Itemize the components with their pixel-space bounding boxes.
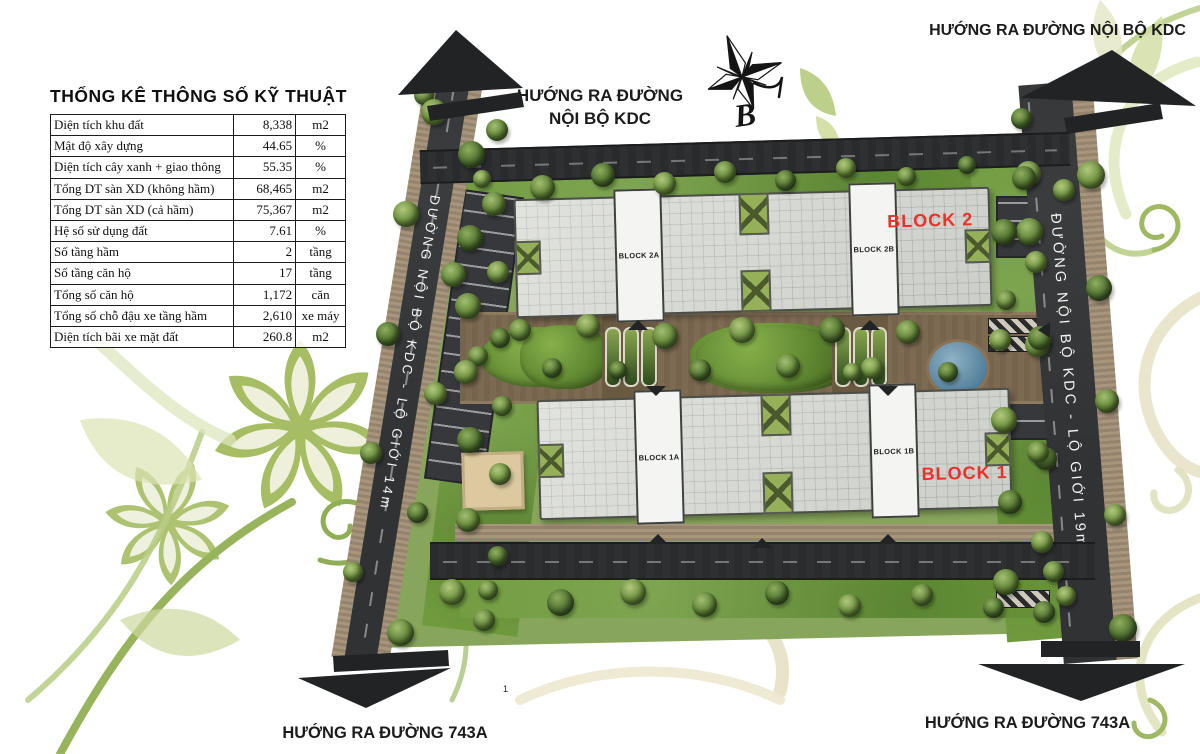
row-unit: %	[296, 136, 346, 157]
row-unit: tầng	[296, 263, 346, 284]
row-unit: %	[296, 220, 346, 241]
stats-panel: THỐNG KÊ THÔNG SỐ KỸ THUẬT Diện tích khu…	[50, 86, 346, 348]
tree	[473, 609, 495, 631]
tree	[692, 592, 717, 617]
block-2-label: BLOCK 2	[874, 209, 987, 233]
table-row: Diện tích cây xanh + giao thông55.35%	[51, 157, 346, 178]
row-value: 68,465	[234, 178, 296, 199]
tree	[996, 290, 1016, 310]
tree	[689, 359, 711, 381]
tree	[1104, 504, 1126, 526]
row-label: Tổng số chỗ đậu xe tầng hầm	[51, 305, 234, 326]
row-unit: tầng	[296, 242, 346, 263]
row-value: 1,172	[234, 284, 296, 305]
row-unit: căn	[296, 284, 346, 305]
table-row: Tổng số chỗ đậu xe tầng hầm2,610xe máy	[51, 305, 346, 326]
tree	[653, 172, 676, 195]
tree	[938, 362, 958, 382]
row-value: 7.61	[234, 220, 296, 241]
page-marker: 1	[503, 684, 508, 694]
row-unit: m2	[296, 178, 346, 199]
row-label: Số tầng căn hộ	[51, 263, 234, 284]
tree	[861, 357, 883, 379]
row-unit: xe máy	[296, 305, 346, 326]
tree	[490, 328, 510, 348]
building-notch	[538, 444, 565, 479]
tree	[1077, 161, 1105, 189]
direction-label-top-center: HƯỚNG RA ĐƯỜNG NỘI BỘ KDC	[500, 84, 700, 130]
stats-table: Diện tích khu đất8,338m2 Mật độ xây dựng…	[50, 114, 346, 348]
building-notch	[760, 394, 791, 437]
core-label: BLOCK 1B	[873, 446, 914, 456]
row-label: Tổng số căn hộ	[51, 284, 234, 305]
building-block-1: BLOCK 1A BLOCK 1B BLOCK 1	[537, 388, 1013, 520]
tree	[441, 262, 466, 287]
table-row: Số tầng hầm2tầng	[51, 242, 346, 263]
road-label-right: ĐƯỜNG NỘI BỘ KDC - LỘ GIỚI 19m	[1047, 213, 1089, 550]
tree	[1025, 251, 1047, 273]
tree	[1033, 601, 1055, 623]
tree	[991, 219, 1017, 245]
building-notch	[515, 241, 542, 276]
lawn-blob	[520, 325, 610, 389]
row-value: 17	[234, 263, 296, 284]
sidewalk-bottom	[455, 524, 1095, 541]
tree	[473, 170, 491, 188]
tree	[1012, 166, 1036, 190]
tree	[489, 463, 511, 485]
core-block-2a: BLOCK 2A	[613, 188, 664, 322]
tree	[387, 619, 414, 646]
tree	[1056, 586, 1076, 606]
tree	[998, 490, 1022, 514]
tree	[1028, 326, 1052, 350]
tree	[458, 141, 485, 168]
row-value: 44.65	[234, 136, 296, 157]
core-label: BLOCK 2B	[853, 244, 894, 254]
row-unit: %	[296, 157, 346, 178]
tree	[1086, 275, 1112, 301]
tree	[993, 569, 1019, 595]
tree	[1043, 561, 1064, 582]
arch-planter	[623, 327, 639, 387]
tree	[376, 322, 400, 346]
table-row: Tổng DT sàn XD (không hầm)68,465m2	[51, 178, 346, 199]
site-plan-page: ĐƯỜNG NỘI BỘ KDC - LỘ GIỚI 14m ĐƯỜNG NỘI…	[0, 0, 1200, 754]
tree	[457, 427, 483, 453]
tree	[542, 358, 562, 378]
building-notch	[964, 229, 991, 264]
lane-line	[443, 561, 1081, 563]
row-value: 260.8	[234, 326, 296, 347]
tree	[482, 192, 506, 216]
table-row: Diện tích khu đất8,338m2	[51, 115, 346, 136]
row-label: Mật độ xây dựng	[51, 136, 234, 157]
tree	[896, 320, 920, 344]
tree	[775, 170, 796, 191]
tree	[983, 597, 1004, 618]
tree	[620, 579, 646, 605]
row-label: Số tầng hầm	[51, 242, 234, 263]
building-notch	[740, 270, 771, 313]
tree	[838, 594, 861, 617]
trellis-band	[602, 315, 658, 401]
row-label: Tổng DT sàn XD (không hầm)	[51, 178, 234, 199]
table-row: Tổng số căn hộ1,172căn	[51, 284, 346, 305]
tree	[819, 317, 845, 343]
block-1-label: BLOCK 1	[908, 462, 1021, 486]
row-label: Diện tích cây xanh + giao thông	[51, 157, 234, 178]
tree	[609, 361, 627, 379]
table-row: Số tầng căn hộ17tầng	[51, 263, 346, 284]
row-value: 75,367	[234, 199, 296, 220]
tree	[492, 396, 512, 416]
core-block-1b: BLOCK 1B	[868, 383, 919, 518]
row-value: 2	[234, 242, 296, 263]
tree	[1109, 614, 1137, 642]
row-unit: m2	[296, 115, 346, 136]
tree	[456, 508, 480, 532]
building-block-2: BLOCK 2A BLOCK 2B BLOCK 2	[514, 187, 993, 318]
tree	[424, 382, 447, 405]
tree	[911, 584, 933, 606]
direction-label-bottom-left: HƯỚNG RA ĐƯỜNG 743A	[265, 724, 505, 743]
tree	[360, 442, 382, 464]
tree	[455, 293, 481, 319]
tree	[421, 99, 447, 125]
tree	[776, 354, 800, 378]
table-row: Diện tích bãi xe mặt đất260.8m2	[51, 326, 346, 347]
direction-label-bottom-right: HƯỚNG RA ĐƯỜNG 743A	[905, 714, 1150, 733]
row-unit: m2	[296, 199, 346, 220]
row-label: Hệ số sử dụng đất	[51, 220, 234, 241]
tree	[478, 580, 498, 600]
tree	[991, 407, 1017, 433]
tree	[1053, 179, 1075, 201]
tree	[1027, 441, 1049, 463]
tree	[488, 546, 508, 566]
row-value: 8,338	[234, 115, 296, 136]
building-notch	[738, 193, 769, 236]
tree	[530, 175, 555, 200]
table-row: Tổng DT sàn XD (cả hầm)75,367m2	[51, 199, 346, 220]
tree	[843, 363, 861, 381]
stats-title: THỐNG KÊ THÔNG SỐ KỸ THUẬT	[50, 86, 346, 107]
tree	[457, 225, 483, 251]
tree	[1011, 108, 1032, 129]
tree	[729, 317, 755, 343]
direction-text: NỘI BỘ KDC	[500, 107, 700, 130]
tree	[652, 323, 678, 349]
direction-text: HƯỚNG RA ĐƯỜNG	[500, 84, 700, 107]
table-row: Mật độ xây dựng44.65%	[51, 136, 346, 157]
table-row: Hệ số sử dụng đất7.61%	[51, 220, 346, 241]
core-block-2b: BLOCK 2B	[848, 182, 899, 316]
tree	[1031, 531, 1053, 553]
tree	[765, 581, 789, 605]
row-unit: m2	[296, 326, 346, 347]
row-label: Diện tích khu đất	[51, 115, 234, 136]
row-label: Diện tích bãi xe mặt đất	[51, 326, 234, 347]
tree	[1016, 218, 1043, 245]
core-label: BLOCK 1A	[639, 452, 680, 462]
row-value: 55.35	[234, 157, 296, 178]
tree	[547, 589, 574, 616]
core-block-1a: BLOCK 1A	[633, 389, 684, 524]
direction-label-top-right: HƯỚNG RA ĐƯỜNG NỘI BỘ KDC	[915, 22, 1200, 40]
tree	[989, 329, 1011, 351]
tree	[454, 360, 478, 384]
row-label: Tổng DT sàn XD (cả hầm)	[51, 199, 234, 220]
tree	[958, 156, 976, 174]
tree	[487, 261, 509, 283]
tree	[509, 319, 531, 341]
tree	[714, 161, 736, 183]
row-value: 2,610	[234, 305, 296, 326]
building-notch	[762, 472, 793, 515]
core-label: BLOCK 2A	[619, 250, 660, 260]
tree	[439, 579, 465, 605]
tree	[576, 314, 600, 338]
